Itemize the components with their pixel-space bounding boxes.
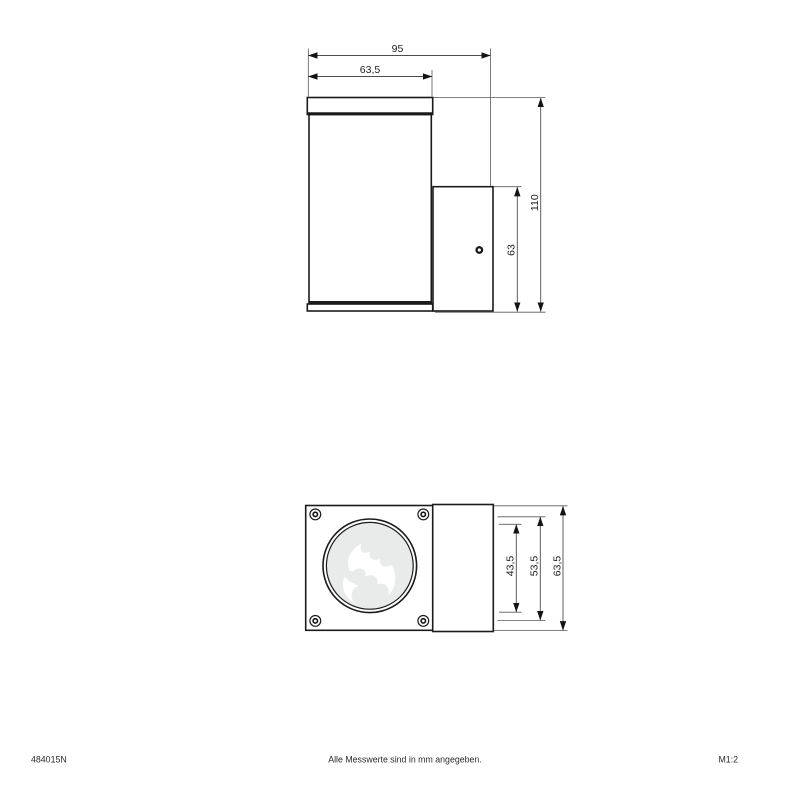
dim-label-total-width: 95 [392, 43, 404, 55]
scale-label: M1:2 [718, 755, 738, 765]
corner-screw-top-right [418, 509, 429, 520]
lamp-cap [307, 98, 432, 115]
lamp-base-rim [307, 304, 432, 311]
screw-center [314, 620, 317, 623]
bracket-screw-hole [475, 246, 483, 254]
dim-label-total-height: 110 [529, 194, 541, 211]
article-number: 484015N [31, 755, 67, 765]
dim-label-plate-size: 63,5 [552, 556, 564, 577]
screw-center [314, 513, 317, 516]
dim-label-body-width: 63,5 [360, 64, 381, 76]
measurement-note: Alle Messwerte sind in mm angegeben. [328, 755, 482, 765]
corner-screw-bottom-left [310, 616, 321, 627]
drawing-page: 95 63,5 110 63 [0, 0, 800, 800]
dim-label-bracket-height: 63 [506, 244, 518, 256]
screw-center [422, 513, 425, 516]
wall-bracket [433, 187, 493, 311]
dim-label-screw-spacing: 53,5 [529, 556, 541, 577]
screw-center [422, 620, 425, 623]
technical-drawing-canvas: 95 63,5 110 63 [0, 0, 800, 800]
lamp-body [309, 115, 431, 304]
corner-screw-bottom-right [418, 616, 429, 627]
dim-label-lens-diameter: 43,5 [505, 556, 517, 577]
screw-hole-center [478, 248, 481, 251]
lamp-body-rear [433, 505, 494, 632]
corner-screw-top-left [310, 509, 321, 520]
